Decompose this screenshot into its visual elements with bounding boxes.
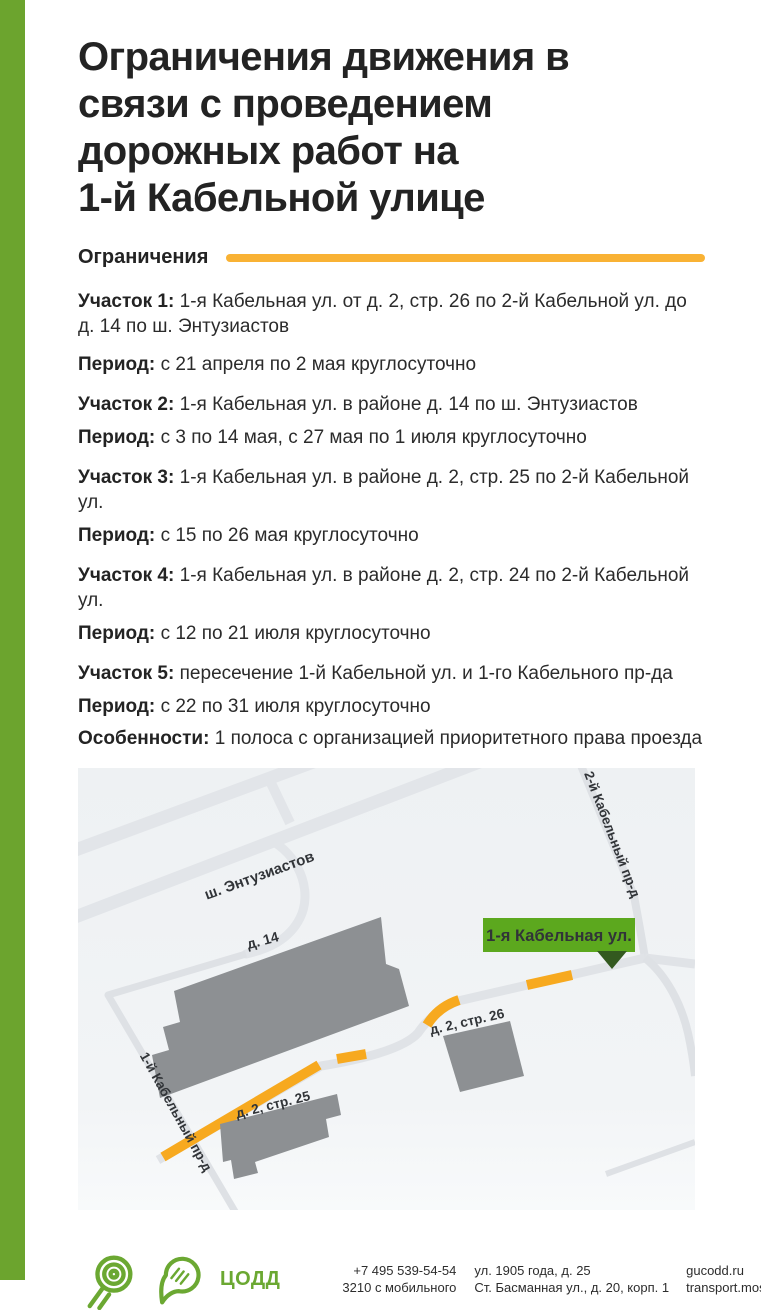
area-5-lead: Участок 5: [78,663,174,684]
address-line-2: Ст. Басманная ул., д. 20, корп. 1 [474,1279,669,1296]
period-3-lead: Период: [78,525,155,546]
site-link-gucodd: gucodd.ru [686,1262,761,1279]
features-lead: Особенности: [78,728,209,749]
restrictions-section-label: Ограничения [78,246,208,269]
footer-contacts: +7 495 539-54-54 3210 с мобильного ул. 1… [342,1262,761,1296]
codd-wordmark: ЦОДД [220,1268,280,1291]
restriction-area-2: Участок 2:1-я Кабельная ул. в районе д. … [78,392,705,417]
area-3-lead: Участок 3: [78,467,174,488]
footer-addresses: ул. 1905 года, д. 25 Ст. Басманная ул., … [474,1262,669,1296]
area-5-text: пересечение 1-й Кабельной ул. и 1-го Каб… [180,663,673,684]
restriction-period-4: Период:с 12 по 21 июля круглосуточно [78,621,705,646]
address-line-1: ул. 1905 года, д. 25 [474,1262,669,1279]
left-accent-bar [0,0,25,1280]
restriction-period-5: Период:с 22 по 31 июля круглосуточно [78,694,705,719]
restriction-features: Особенности:1 полоса с организацией прио… [78,726,705,751]
period-2-lead: Период: [78,427,155,448]
period-5-lead: Период: [78,696,155,717]
yellow-rule [226,254,705,262]
period-1-lead: Период: [78,354,155,375]
features-text: 1 полоса с организацией приоритетного пр… [215,728,702,749]
area-1-lead: Участок 1: [78,291,174,312]
callout-label: 1-я Кабельная ул. [486,927,632,945]
restriction-area-3: Участок 3:1-я Кабельная ул. в районе д. … [78,465,705,515]
period-1-text: с 21 апреля по 2 мая круглосуточно [161,354,477,375]
title-line-2: связи с проведением [78,81,705,128]
title-line-4: 1-й Кабельной улице [78,175,705,222]
restrictions-section-header: Ограничения [78,246,705,269]
footer-links: gucodd.ru transport.mos.ru [686,1262,761,1296]
site-link-transport: transport.mos.ru [686,1279,761,1296]
title-line-3: дорожных работ на [78,128,705,175]
period-4-lead: Период: [78,623,155,644]
period-5-text: с 22 по 31 июля круглосуточно [161,696,431,717]
area-4-lead: Участок 4: [78,565,174,586]
restrictions-list: Участок 1:1-я Кабельная ул. от д. 2, стр… [78,289,705,751]
title-line-1: Ограничения движения в [78,34,705,81]
footer-phones: +7 495 539-54-54 3210 с мобильного [342,1262,456,1296]
area-2-lead: Участок 2: [78,394,174,415]
period-2-text: с 3 по 14 мая, с 27 мая по 1 июля кругло… [161,427,587,448]
poster-content: Ограничения движения в связи с проведени… [78,0,705,1310]
restriction-period-3: Период:с 15 по 26 мая круглосуточно [78,523,705,548]
restriction-area-4: Участок 4:1-я Кабельная ул. в районе д. … [78,563,705,613]
restriction-area-1: Участок 1:1-я Кабельная ул. от д. 2, стр… [78,289,705,339]
codd-hatched-pin-icon [150,1248,206,1310]
roadworks-map: д. 14 д. 2, стр. 25 д. 2, стр. 26 ш. Энт… [78,768,695,1210]
map-canvas: д. 14 д. 2, стр. 25 д. 2, стр. 26 ш. Энт… [78,768,695,1210]
area-2-text: 1-я Кабельная ул. в районе д. 14 по ш. Э… [180,394,638,415]
restriction-area-5: Участок 5:пересечение 1-й Кабельной ул. … [78,661,705,686]
codd-logo: ЦОДД [82,1248,280,1310]
phone-number: +7 495 539-54-54 [342,1262,456,1279]
restriction-period-1: Период:с 21 апреля по 2 мая круглосуточн… [78,352,705,377]
workzone-segment-dash [337,1054,366,1059]
restriction-period-2: Период:с 3 по 14 мая, с 27 мая по 1 июля… [78,425,705,450]
page-title: Ограничения движения в связи с проведени… [78,34,705,222]
codd-spiral-pin-icon [82,1248,140,1310]
footer: ЦОДД +7 495 539-54-54 3210 с мобильного … [82,1248,702,1310]
period-4-text: с 12 по 21 июля круглосуточно [161,623,431,644]
phone-mobile: 3210 с мобильного [342,1279,456,1296]
period-3-text: с 15 по 26 мая круглосуточно [161,525,419,546]
